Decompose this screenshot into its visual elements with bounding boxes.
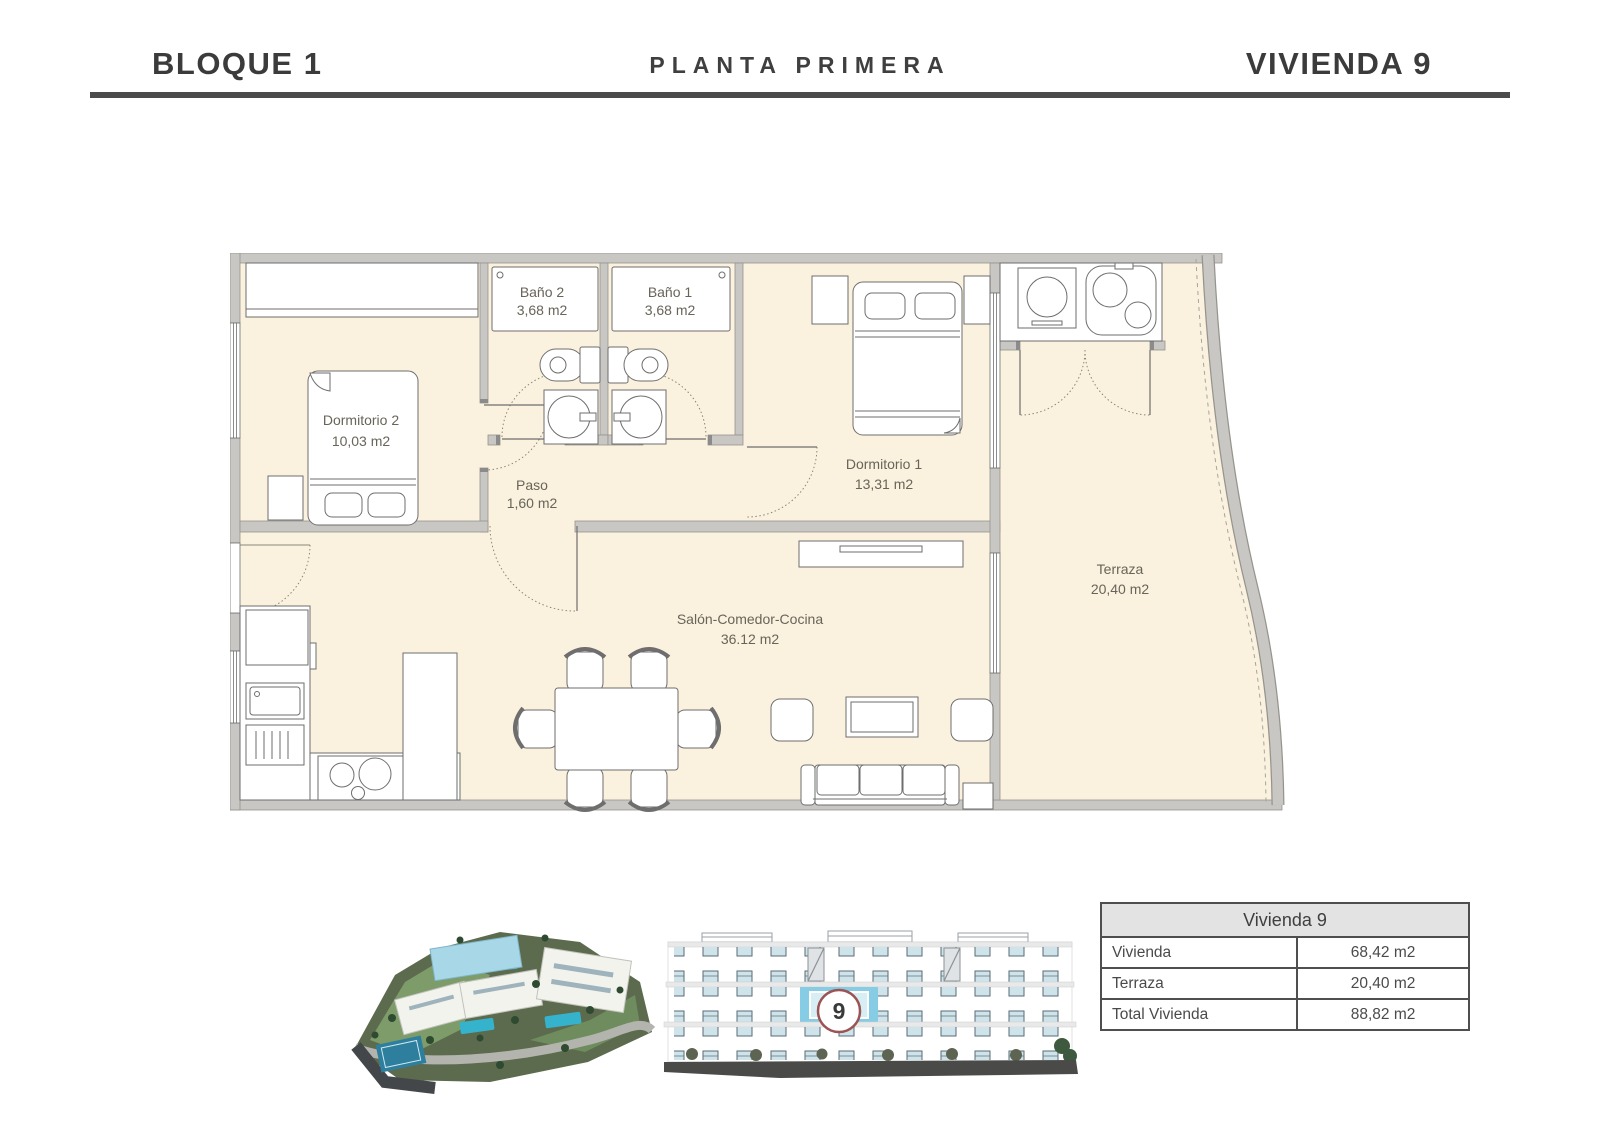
nightstand-left-dormitorio1 — [812, 276, 848, 324]
coffee-table — [846, 697, 918, 737]
unit-title: VIVIENDA 9 — [1246, 46, 1432, 82]
svg-text:Salón-Comedor-Cocina: Salón-Comedor-Cocina — [677, 611, 824, 627]
row-value: 88,82 m2 — [1298, 1000, 1468, 1029]
svg-text:Terraza: Terraza — [1097, 561, 1144, 577]
svg-text:Baño 1: Baño 1 — [648, 284, 693, 300]
table-row: Total Vivienda 88,82 m2 — [1102, 1000, 1468, 1029]
roof-railings — [702, 931, 1028, 942]
toilet-bano2 — [540, 347, 600, 383]
svg-text:Dormitorio 1: Dormitorio 1 — [846, 456, 922, 472]
vanity-bano2 — [544, 390, 598, 444]
bed-dormitorio1 — [853, 282, 962, 435]
hob-icon — [318, 756, 406, 800]
header-divider — [90, 92, 1510, 98]
svg-text:Paso: Paso — [516, 477, 548, 493]
wardrobe-dormitorio2 — [246, 263, 478, 317]
unit-badge: 9 — [818, 990, 860, 1032]
sofa — [801, 765, 959, 805]
svg-text:3,68 m2: 3,68 m2 — [645, 302, 696, 318]
utility-area — [1000, 263, 1162, 341]
aerial-render-image — [340, 920, 670, 1098]
toilet-bano1 — [608, 347, 668, 383]
window-kitchen — [230, 651, 240, 723]
elevation-image: 9 — [660, 924, 1080, 1082]
vanity-bano1 — [612, 390, 666, 444]
svg-text:3,68 m2: 3,68 m2 — [517, 302, 568, 318]
glass-door-dormitorio1 — [990, 293, 1000, 468]
tv-console — [799, 541, 963, 567]
side-table — [963, 783, 993, 809]
table-row: Vivienda 68,42 m2 — [1102, 938, 1468, 969]
svg-text:Baño 2: Baño 2 — [520, 284, 565, 300]
pouf-right — [951, 699, 993, 741]
unit-badge-number: 9 — [833, 998, 846, 1024]
nightstand-dormitorio2 — [268, 476, 303, 520]
summary-table-title: Vivienda 9 — [1102, 904, 1468, 938]
svg-text:13,31 m2: 13,31 m2 — [855, 476, 914, 492]
svg-text:36.12 m2: 36.12 m2 — [721, 631, 780, 647]
row-label: Total Vivienda — [1102, 1000, 1298, 1029]
svg-text:Dormitorio 2: Dormitorio 2 — [323, 412, 399, 428]
floor-plan: Baño 2 3,68 m2 Baño 1 3,68 m2 Dormitorio… — [230, 253, 1300, 825]
row-label: Terraza — [1102, 969, 1298, 998]
boiler-icon — [1086, 263, 1156, 335]
row-label: Vivienda — [1102, 938, 1298, 967]
nightstand-right-dormitorio1 — [964, 276, 990, 324]
row-value: 68,42 m2 — [1298, 938, 1468, 967]
table-row: Terraza 20,40 m2 — [1102, 969, 1468, 1000]
kitchen-island — [403, 653, 457, 800]
washing-machine-icon — [1018, 268, 1076, 328]
glass-slider-salon — [990, 553, 1000, 673]
window-dormitorio2 — [230, 323, 240, 438]
svg-text:20,40 m2: 20,40 m2 — [1091, 581, 1150, 597]
pouf-left — [771, 699, 813, 741]
floorplan-sheet: BLOQUE 1 PLANTA PRIMERA VIVIENDA 9 — [0, 0, 1600, 1132]
svg-text:1,60 m2: 1,60 m2 — [507, 495, 558, 511]
row-value: 20,40 m2 — [1298, 969, 1468, 998]
svg-text:10,03 m2: 10,03 m2 — [332, 433, 391, 449]
summary-table: Vivienda 9 Vivienda 68,42 m2 Terraza 20,… — [1100, 902, 1470, 1031]
ground-strip — [664, 1060, 1078, 1078]
